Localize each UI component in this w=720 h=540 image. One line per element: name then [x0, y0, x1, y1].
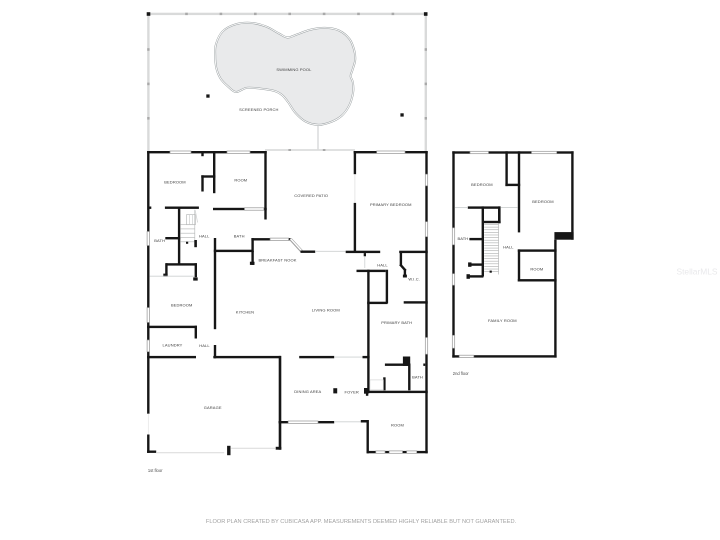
svg-text:HALL: HALL: [503, 245, 514, 250]
svg-text:ROOM: ROOM: [391, 423, 404, 428]
svg-text:BATH: BATH: [154, 238, 165, 243]
svg-text:PRIMARY BATH: PRIMARY BATH: [381, 320, 412, 325]
svg-text:BEDROOM: BEDROOM: [532, 199, 554, 204]
svg-text:BEDROOM: BEDROOM: [171, 303, 193, 308]
svg-text:2nd floor: 2nd floor: [453, 371, 470, 376]
svg-text:BATH: BATH: [234, 234, 245, 239]
svg-text:SCREENED PORCH: SCREENED PORCH: [239, 107, 278, 112]
svg-text:FOYER: FOYER: [345, 389, 359, 394]
svg-text:LAUNDRY: LAUNDRY: [163, 343, 183, 348]
svg-text:ROOM: ROOM: [234, 177, 247, 182]
svg-text:FLOOR PLAN CREATED BY CUBICASA: FLOOR PLAN CREATED BY CUBICASA APP. MEAS…: [206, 519, 517, 525]
svg-text:1st floor: 1st floor: [148, 468, 163, 473]
svg-text:BREAKFAST NOOK: BREAKFAST NOOK: [258, 257, 296, 262]
svg-text:SWIMMING POOL: SWIMMING POOL: [276, 67, 312, 72]
svg-text:HALL: HALL: [199, 234, 210, 239]
svg-text:BATH: BATH: [457, 236, 468, 241]
svg-text:COVERED PATIO: COVERED PATIO: [294, 193, 328, 198]
svg-text:W.I.C.: W.I.C.: [408, 277, 420, 282]
svg-text:BEDROOM: BEDROOM: [471, 182, 493, 187]
svg-text:LIVING ROOM: LIVING ROOM: [312, 308, 340, 313]
svg-text:GARAGE: GARAGE: [204, 405, 222, 410]
svg-text:BEDROOM: BEDROOM: [164, 179, 186, 184]
svg-text:HALL: HALL: [199, 343, 210, 348]
svg-text:BATH: BATH: [412, 374, 423, 379]
svg-text:KITCHEN: KITCHEN: [236, 309, 254, 314]
svg-text:DINING AREA: DINING AREA: [294, 389, 321, 394]
svg-text:PRIMARY BEDROOM: PRIMARY BEDROOM: [370, 202, 412, 207]
svg-text:ROOM: ROOM: [530, 267, 543, 272]
svg-text:StellarMLS: StellarMLS: [677, 267, 718, 277]
svg-text:FAMILY ROOM: FAMILY ROOM: [488, 318, 517, 323]
svg-text:HALL: HALL: [377, 262, 388, 267]
